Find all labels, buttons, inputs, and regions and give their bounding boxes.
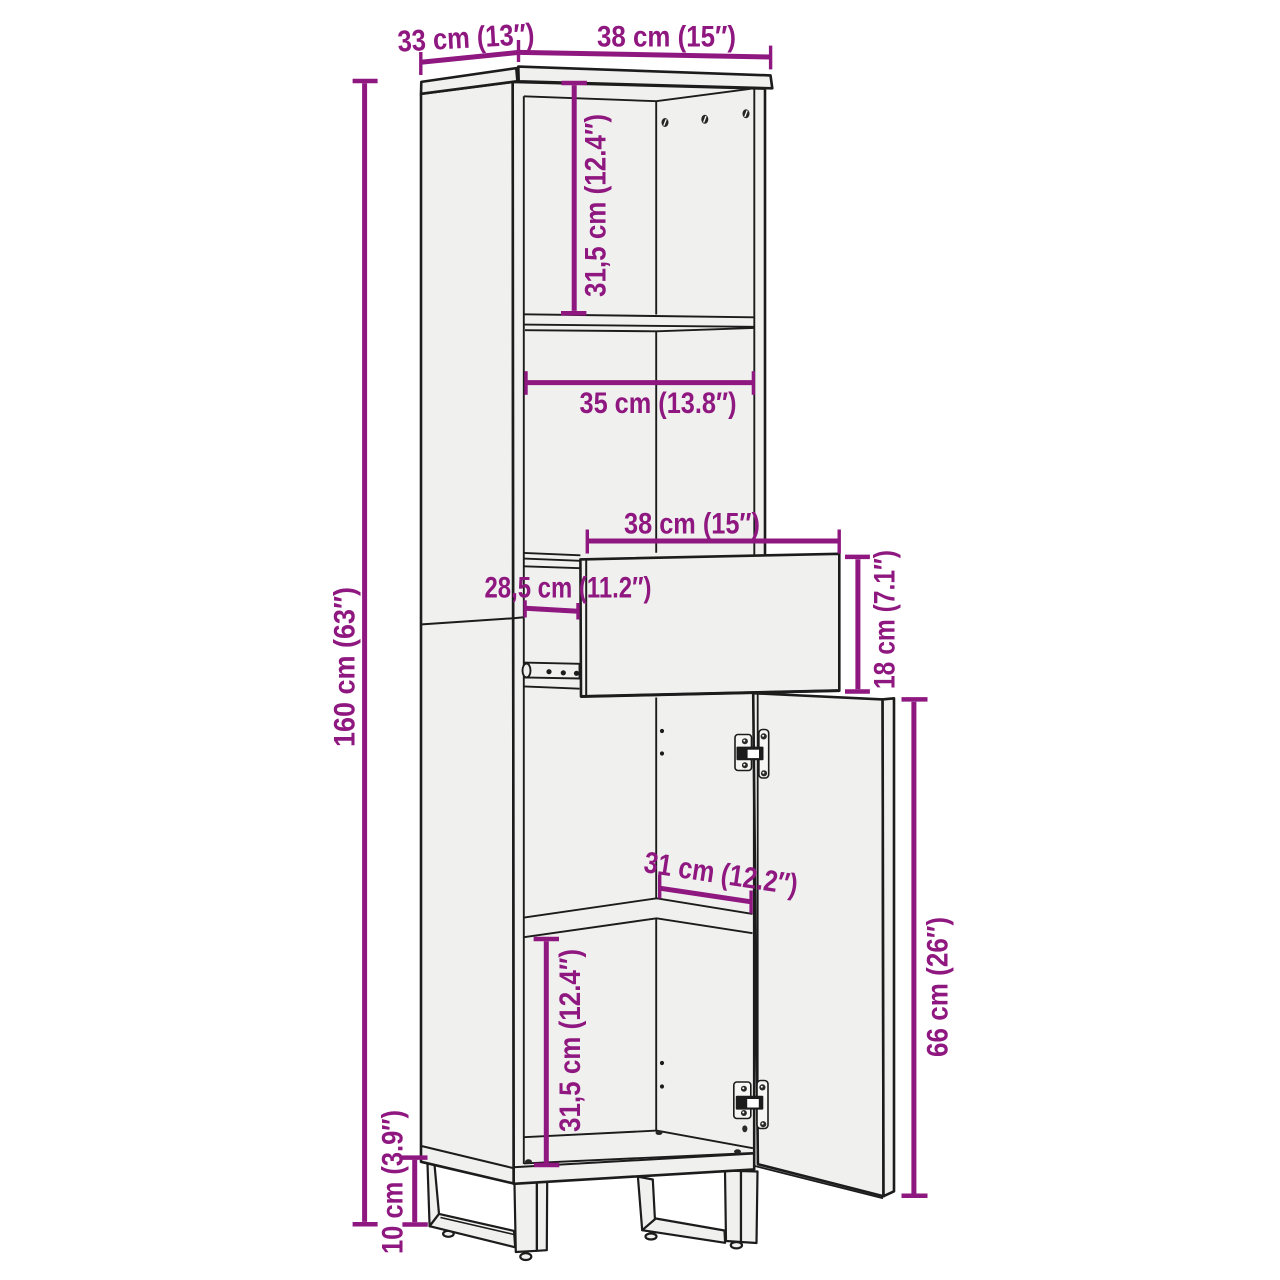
svg-text:28,5 cm (11.2″): 28,5 cm (11.2″) <box>485 572 652 605</box>
svg-text:18 cm (7.1″): 18 cm (7.1″) <box>869 550 902 689</box>
svg-text:35 cm (13.8″): 35 cm (13.8″) <box>580 387 737 420</box>
svg-text:160 cm (63″): 160 cm (63″) <box>329 587 362 747</box>
svg-text:66 cm (26″): 66 cm (26″) <box>922 917 955 1057</box>
svg-text:10 cm (3.9″): 10 cm (3.9″) <box>377 1110 410 1254</box>
svg-text:38 cm (15″): 38 cm (15″) <box>624 508 760 541</box>
svg-text:38 cm (15″): 38 cm (15″) <box>597 21 736 54</box>
svg-text:31,5 cm (12.4″): 31,5 cm (12.4″) <box>580 114 613 297</box>
svg-text:31,5 cm (12.4″): 31,5 cm (12.4″) <box>554 949 587 1132</box>
